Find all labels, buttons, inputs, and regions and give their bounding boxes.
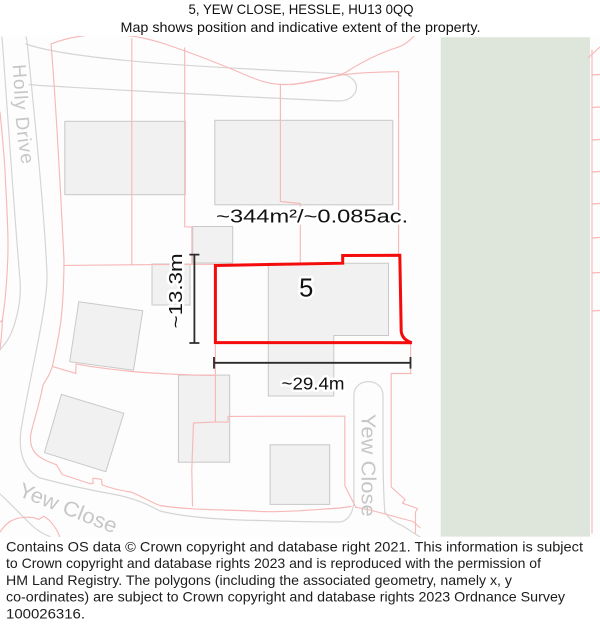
svg-text:~29.4m: ~29.4m (282, 374, 345, 394)
svg-text:~344m²/~0.085ac.: ~344m²/~0.085ac. (216, 206, 408, 227)
svg-text:Contains OS data © Crown copyr: Contains OS data © Crown copyright and d… (6, 539, 583, 555)
svg-text:5: 5 (299, 275, 313, 303)
svg-text:to Crown copyright and databas: to Crown copyright and database rights 2… (6, 555, 541, 571)
svg-text:100026316.: 100026316. (6, 606, 85, 622)
svg-text:5, YEW CLOSE, HESSLE, HU13 0QQ: 5, YEW CLOSE, HESSLE, HU13 0QQ (189, 1, 414, 17)
svg-text:co-ordinates) are subject to C: co-ordinates) are subject to Crown copyr… (6, 589, 565, 605)
svg-text:Map shows position and indicat: Map shows position and indicative extent… (121, 19, 481, 35)
svg-text:HM Land Registry. The polygons: HM Land Registry. The polygons (includin… (6, 572, 512, 588)
svg-text:Yew Close: Yew Close (357, 414, 379, 517)
svg-text:~13.3m: ~13.3m (165, 253, 186, 328)
